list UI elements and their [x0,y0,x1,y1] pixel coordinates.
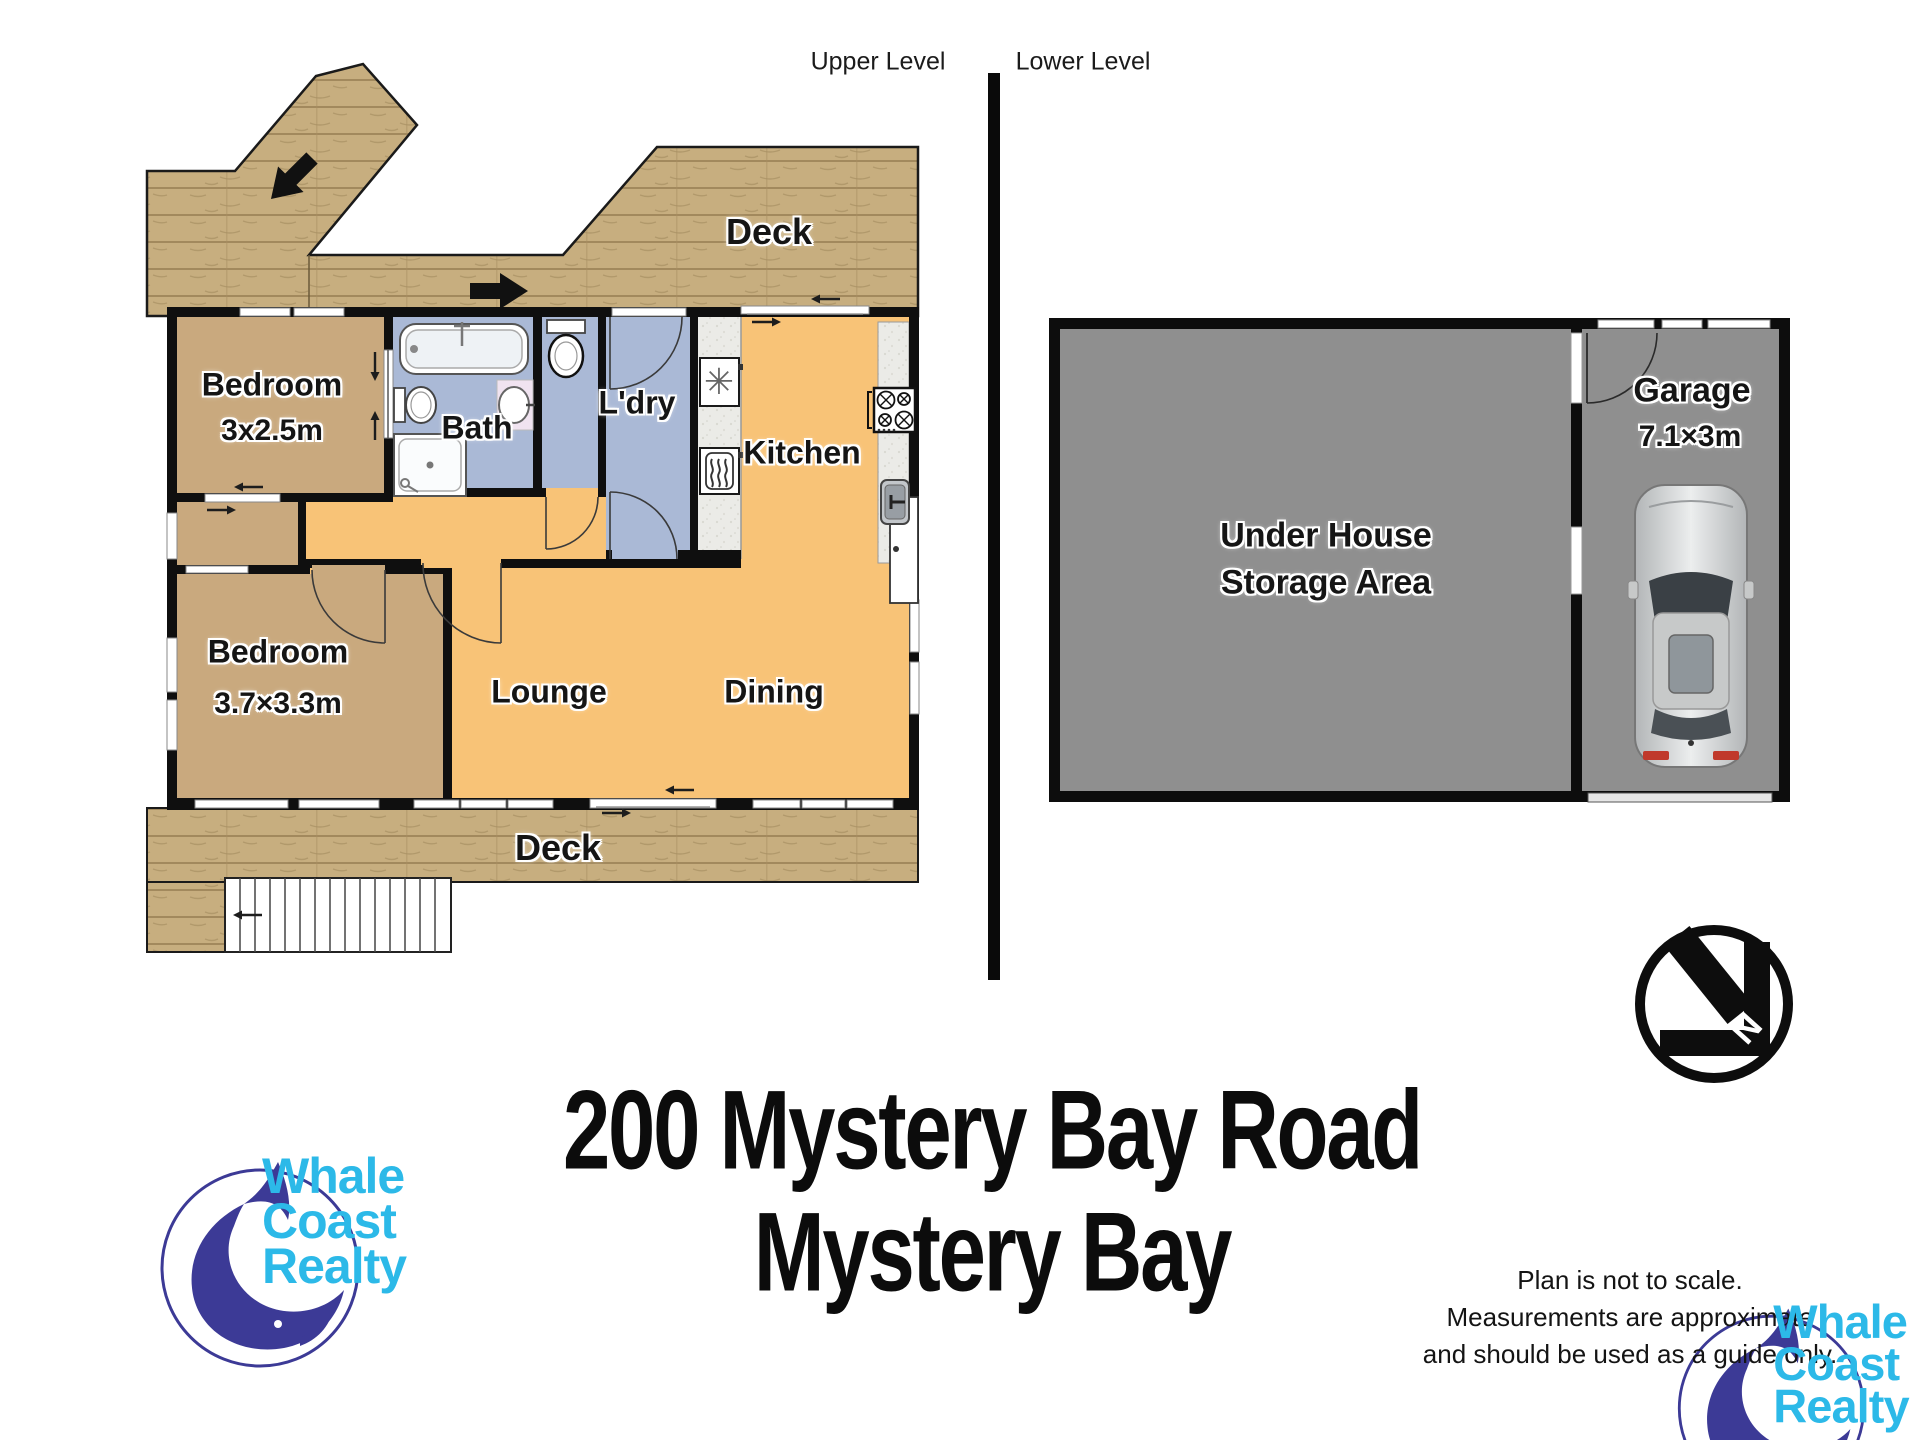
lower-level-label: Lower Level [1016,48,1151,77]
bath-label: Bath [441,410,512,447]
vestibule-floor [177,502,298,565]
page-title-line2: Mystery Bay [754,1188,1230,1317]
kitchen-sink-icon [881,480,909,524]
upper-level-plan: ✳ [147,64,919,952]
garage-door [1588,793,1772,802]
brand-logo-small: Whale Coast Realty [1668,1288,1920,1440]
laundry-label: L'dry [599,385,676,422]
level-divider [988,73,1000,980]
deck-bottom-label: Deck [515,827,601,869]
oven-icon [700,448,743,494]
fridge-icon: ✳ [700,358,743,406]
bath-toilet-icon [394,387,436,423]
bedroom2-floor [177,574,443,798]
brand-logo: Whale Coast Realty [150,1140,570,1390]
garage-size-label: 7.1×3m [1639,420,1742,454]
storage-garage-opening [1571,527,1582,594]
stairs [225,878,451,952]
garage-windows [1598,320,1770,328]
bathtub [400,322,528,374]
bedroom2-size-label: 3.7×3.3m [214,687,342,721]
bedroom2-label: Bedroom [208,634,348,671]
dining-label: Dining [724,674,824,711]
deck-top-label: Deck [726,211,812,253]
lounge-label: Lounge [491,674,607,711]
upper-level-label: Upper Level [811,48,946,77]
storage-label-line2: Storage Area [1221,564,1431,603]
appliance-nook-floor [698,317,741,559]
page-title-line1: 200 Mystery Bay Road [563,1066,1421,1195]
wc-toilet-icon [547,320,585,377]
car [1628,485,1754,767]
laundry-floor [606,317,690,559]
bedroom1-size-label: 3x2.5m [221,414,323,448]
logo-word-realty: Realty [262,1244,406,1289]
floorplan-page: ✳ [0,0,1920,1440]
bedroom1-label: Bedroom [202,367,342,404]
bedroom1-floor [177,317,384,493]
garage-label: Garage [1633,372,1750,411]
north-arrow-icon: N [1640,930,1788,1078]
logo-word-realty: Realty [1773,1386,1908,1428]
upper-deck-top [147,64,918,316]
svg-text:✳: ✳ [704,362,734,403]
storage-label-line1: Under House [1220,517,1432,556]
kitchen-label: Kitchen [743,435,860,472]
stove-icon [868,388,915,432]
